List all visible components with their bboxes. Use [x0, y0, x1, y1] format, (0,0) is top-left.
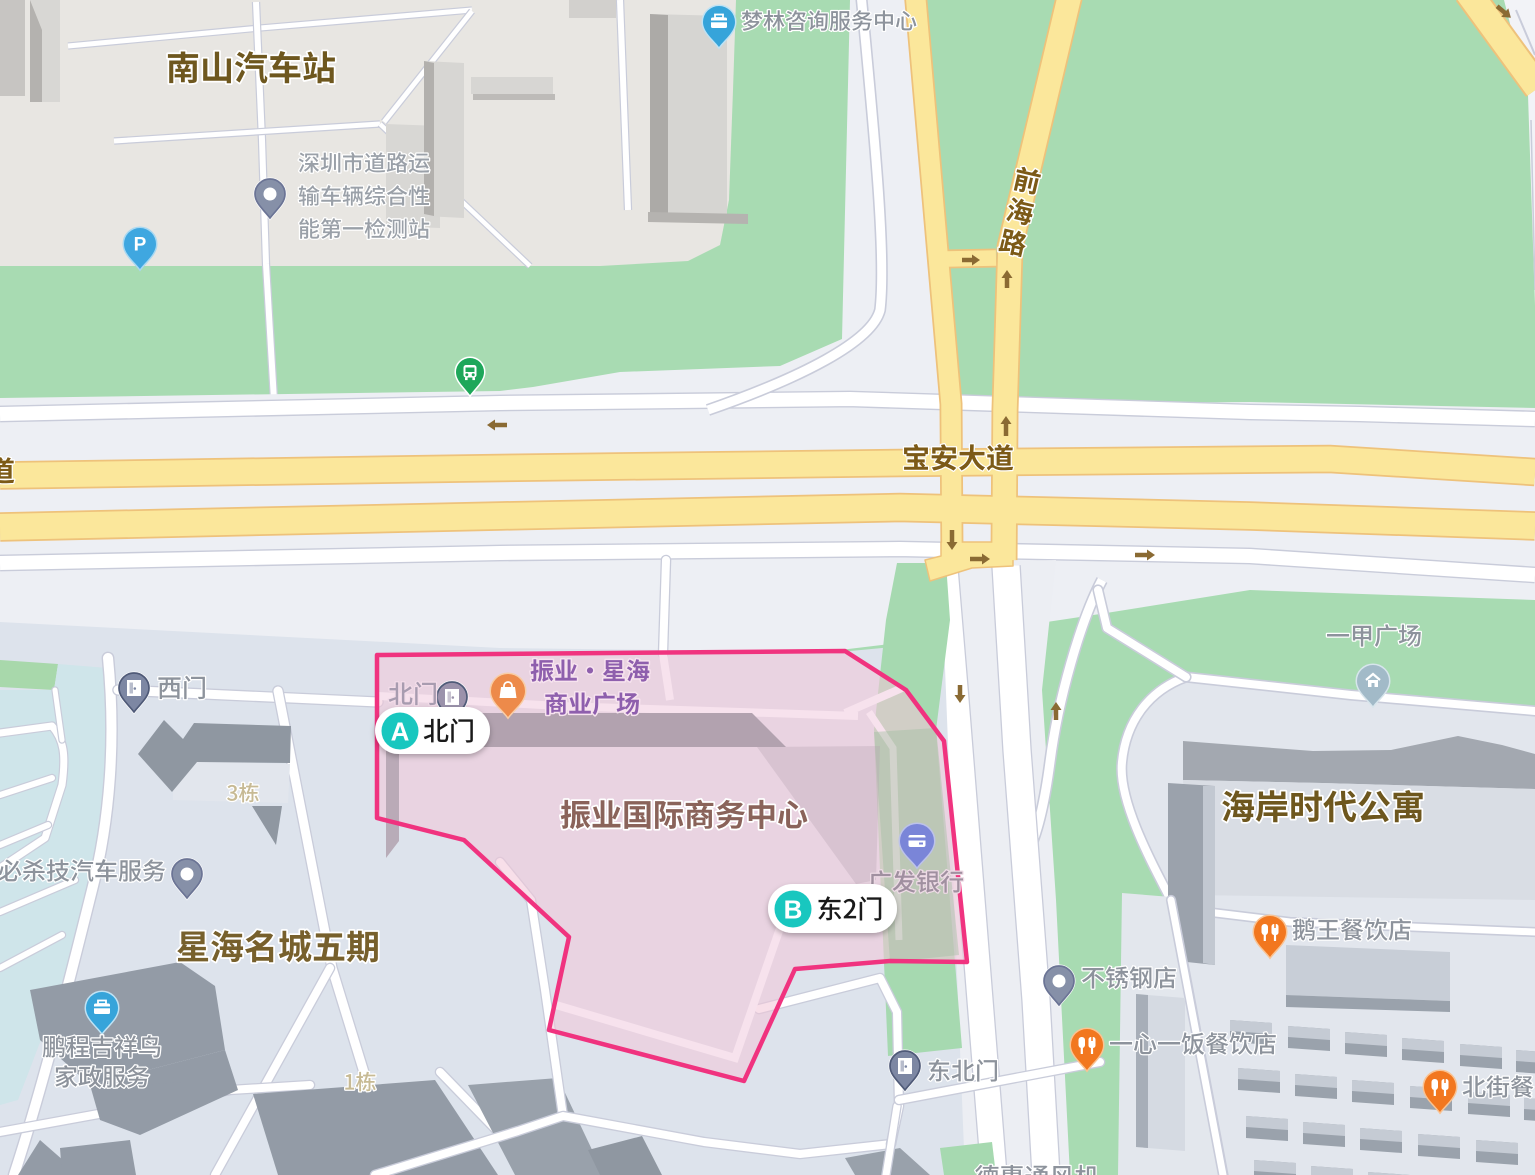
svg-text:A: A — [391, 717, 410, 747]
svg-text:P: P — [134, 235, 147, 256]
svg-text:B: B — [784, 895, 803, 925]
